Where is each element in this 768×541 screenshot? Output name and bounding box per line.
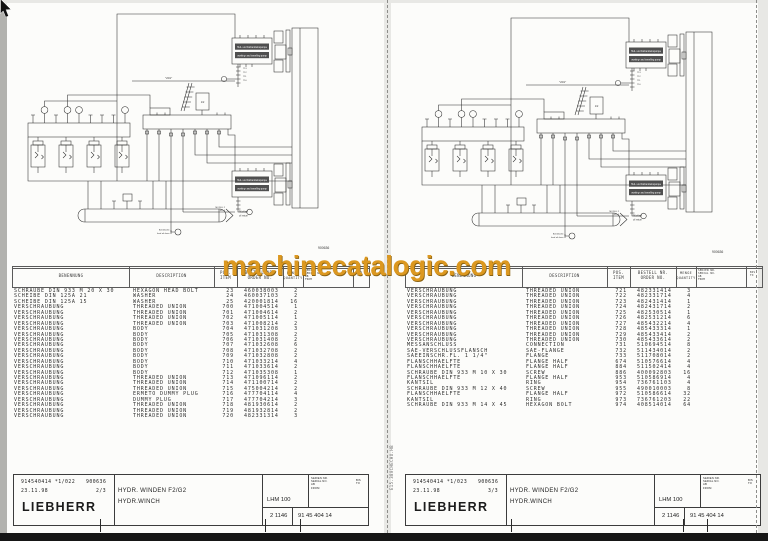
- footer-divider: [506, 475, 507, 525]
- serial-header: SERIEN NR.SERIAL NO.ABFROM: [703, 477, 720, 490]
- drawing-number-right: 91 45 404 14: [298, 513, 332, 519]
- part-name-de: VERSCHRAUBUNG: [14, 413, 64, 419]
- document-number: 914540414 *1/022: [21, 480, 75, 485]
- part-description: THREADED UNION: [133, 413, 187, 419]
- title-de: HYDR. WINDEN F2/G2: [510, 488, 578, 494]
- quantity: 3: [274, 413, 298, 419]
- footer-divider: [262, 475, 263, 525]
- figure-code: 900636: [86, 480, 106, 485]
- mouse-cursor: [0, 0, 14, 19]
- footer-divider: [654, 507, 760, 508]
- footer-divider: [700, 475, 701, 507]
- drawing-number-left: 2 1146: [662, 513, 679, 519]
- hydraulic-schematic-right: [401, 7, 768, 257]
- hydraulic-schematic-left: [7, 3, 375, 253]
- col-order: BESTELL NR.ORDER NO.: [630, 271, 676, 280]
- footer-divider: [684, 507, 685, 525]
- footer-divider: [308, 475, 309, 507]
- date: 23.11.98: [21, 489, 48, 494]
- col-description: DESCRIPTION: [129, 274, 214, 279]
- col-description: DESCRIPTION: [522, 274, 607, 279]
- column-divider: [746, 267, 747, 287]
- title-en: HYDR.WINCH: [118, 499, 160, 505]
- registration-mark: [683, 519, 684, 532]
- figure-code: 900636: [478, 480, 498, 485]
- model: LHM 100: [267, 497, 291, 503]
- brand-logo: LIEBHERR: [22, 500, 96, 514]
- part-description: HEXAGON BOLT: [526, 402, 572, 408]
- sheet-number: 2/3: [96, 489, 106, 494]
- registration-mark: [100, 519, 101, 532]
- date: 23.11.98: [413, 489, 440, 494]
- footer-divider: [292, 507, 293, 525]
- title-en: HYDR.WINCH: [510, 499, 552, 505]
- footer-divider: [654, 475, 655, 525]
- page-edge-shadow: [0, 10, 7, 533]
- registration-mark: [511, 519, 512, 532]
- col-serial: SERIEN NR.SERIAL NO.ABFROM: [698, 269, 744, 281]
- watermark: machinecatalogic.com: [222, 250, 511, 282]
- col-bis: BISTO: [750, 271, 755, 277]
- title-de: HYDR. WINDEN F2/G2: [118, 488, 186, 494]
- registration-mark: [300, 519, 301, 532]
- pos-item: 974: [599, 402, 627, 408]
- part-name-de: SCHRAUBE DIN 933 M 14 X 45: [407, 402, 507, 408]
- serial-header: SERIEN NR.SERIAL NO.ABFROM: [311, 477, 328, 490]
- scanned-catalog-page: BENENNUNG DESCRIPTION POS.ITEM BESTELL N…: [0, 0, 768, 541]
- margin-reference-note: E15.380CHECHU.HB: [389, 445, 394, 490]
- bis-header: BISTO: [748, 479, 753, 485]
- bis-header: BISTO: [356, 479, 361, 485]
- brand-logo: LIEBHERR: [414, 500, 488, 514]
- footer-divider: [114, 475, 115, 525]
- col-pos: POS.ITEM: [607, 271, 630, 280]
- sheet-number: 3/3: [488, 489, 498, 494]
- title-block-left: 914540414 *1/022 900636 23.11.98 2/3 LIE…: [13, 474, 369, 526]
- model: LHM 100: [659, 497, 683, 503]
- col-benennung: BENENNUNG: [13, 274, 129, 279]
- pos-item: 720: [206, 413, 234, 419]
- quantity: 64: [667, 402, 691, 408]
- document-number: 914540414 *1/023: [413, 480, 467, 485]
- scan-black-bar: [0, 533, 768, 541]
- registration-mark: [265, 519, 266, 532]
- column-divider: [696, 267, 697, 287]
- col-qty: MENGEQUANTITY: [676, 271, 696, 280]
- footer-divider: [262, 507, 368, 508]
- drawing-number-left: 2 1146: [270, 513, 287, 519]
- page-edge-dashed-line: [756, 0, 757, 533]
- registration-mark: [707, 519, 708, 532]
